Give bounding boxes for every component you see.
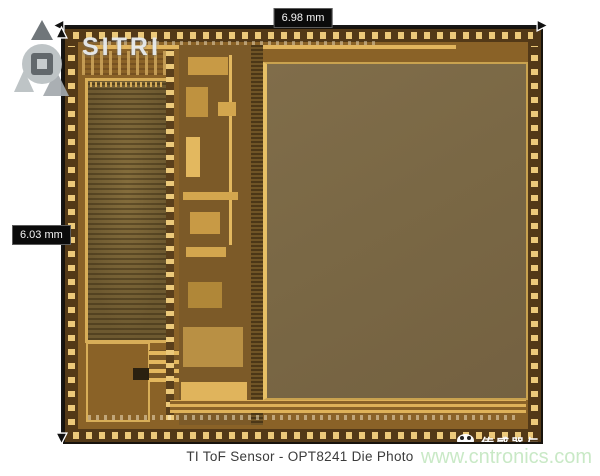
memory-macro-block bbox=[85, 78, 170, 343]
plate-bottom-left bbox=[86, 342, 150, 422]
arrowhead-down-icon bbox=[55, 432, 68, 445]
width-dimension-label: 6.98 mm bbox=[274, 8, 333, 28]
website-watermark: www.cntronics.com bbox=[421, 446, 592, 469]
analog-block-column bbox=[179, 45, 251, 425]
pixel-array bbox=[263, 62, 528, 400]
cn-watermark: 传感器与科 bbox=[481, 433, 543, 444]
die-photo: 传感器与科 bbox=[63, 27, 543, 444]
dark-block bbox=[133, 368, 149, 380]
die-core bbox=[78, 42, 528, 429]
pad-ring-right bbox=[528, 42, 541, 429]
height-dimension-label: 6.03 mm bbox=[12, 225, 71, 245]
arrowhead-right-icon bbox=[536, 19, 549, 32]
bottom-bus-lines bbox=[170, 400, 526, 413]
sitri-emblem-icon bbox=[12, 18, 72, 102]
panda-icon bbox=[457, 434, 474, 444]
row-driver-strip bbox=[251, 45, 263, 425]
die-markings-bottom bbox=[88, 415, 518, 420]
inner-pad-column bbox=[166, 50, 174, 420]
sitri-logo-text: SITRI bbox=[82, 33, 161, 62]
